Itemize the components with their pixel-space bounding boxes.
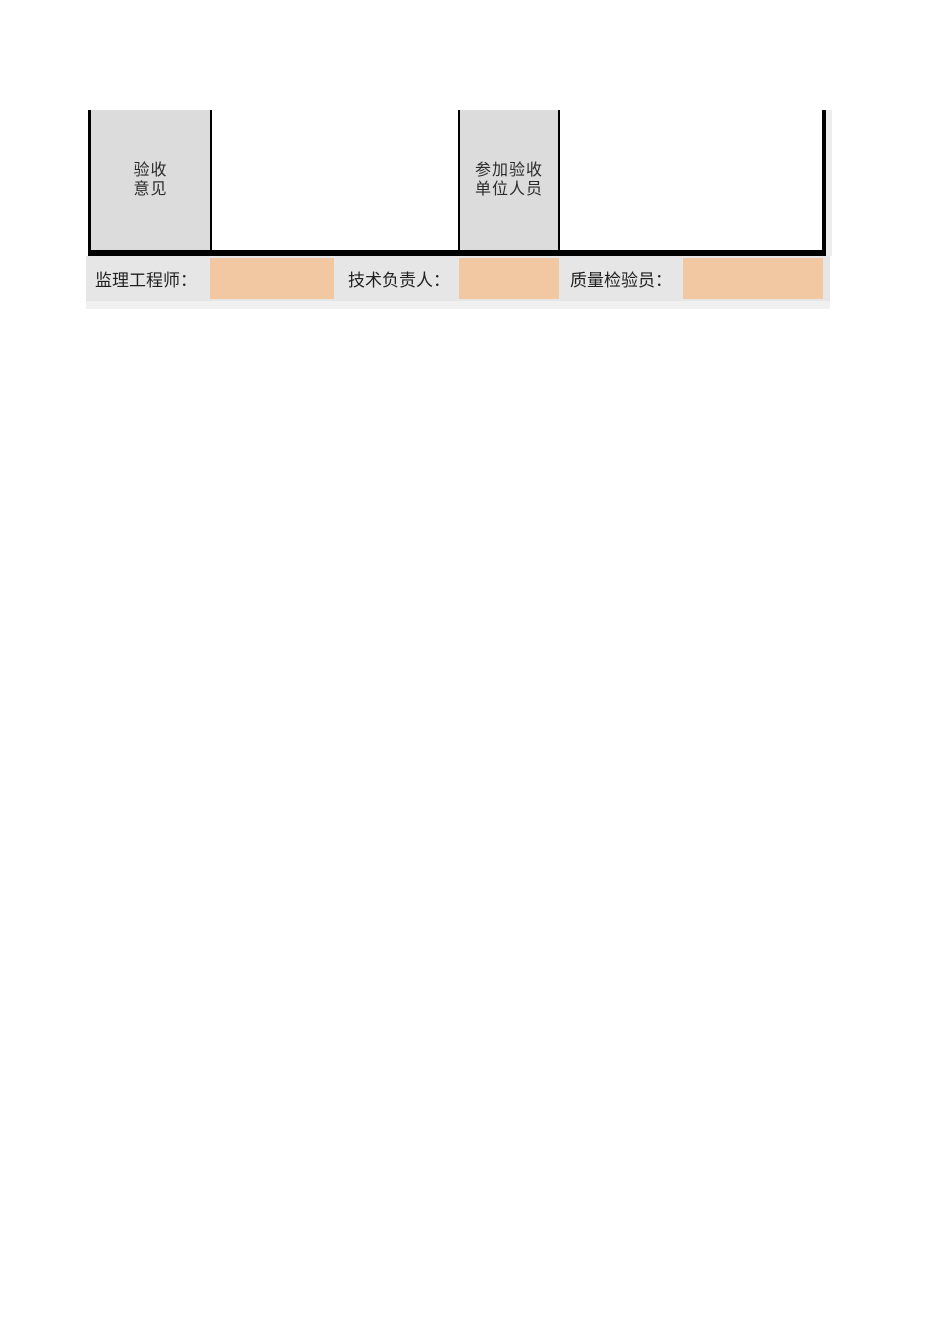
participants-content-cell[interactable] [560, 110, 822, 250]
quality-inspector-field[interactable] [683, 258, 823, 299]
technical-director-label: 技术负责人： [348, 256, 450, 301]
acceptance-opinion-label: 验收 意见 [133, 161, 167, 199]
acceptance-opinion-label-line1: 验收 [133, 161, 167, 180]
signature-bar-bottom-edge [86, 301, 830, 309]
supervising-engineer-field[interactable] [210, 258, 334, 299]
acceptance-table: 验收 意见 参加验收 单位人员 [88, 110, 826, 256]
participants-label-line1: 参加验收 [475, 161, 543, 180]
signature-bar: 监理工程师： 技术负责人： 质量检验员： [86, 256, 830, 301]
table-right-shadow [826, 110, 832, 256]
acceptance-opinion-content-cell[interactable] [212, 110, 460, 250]
technical-director-field[interactable] [459, 258, 559, 299]
participants-header-cell: 参加验收 单位人员 [460, 110, 560, 250]
document-page: 验收 意见 参加验收 单位人员 监理工程师： 技术负责人： 质量检验员： [0, 0, 950, 1344]
quality-inspector-label: 质量检验员： [570, 256, 672, 301]
participants-label-line2: 单位人员 [475, 180, 543, 199]
supervising-engineer-label: 监理工程师： [95, 256, 197, 301]
participants-label: 参加验收 单位人员 [475, 161, 543, 199]
acceptance-opinion-header-cell: 验收 意见 [91, 110, 212, 250]
acceptance-opinion-label-line2: 意见 [133, 180, 167, 199]
